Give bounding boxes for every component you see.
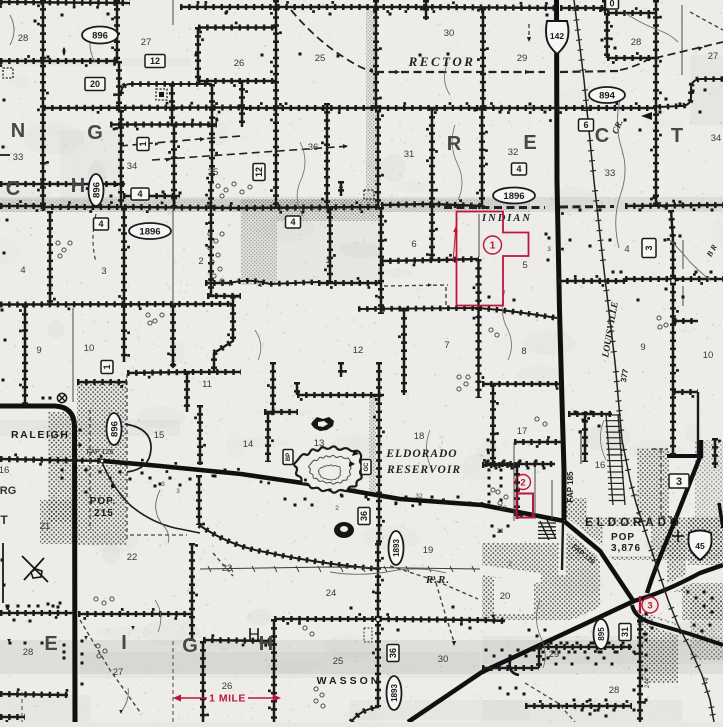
- svg-text:RECTOR: RECTOR: [408, 54, 476, 69]
- svg-text:19: 19: [423, 545, 434, 556]
- svg-text:4: 4: [290, 217, 295, 227]
- svg-text:28: 28: [23, 647, 34, 658]
- svg-text:22: 22: [127, 552, 138, 563]
- svg-text:27: 27: [708, 51, 719, 62]
- svg-text:2: 2: [520, 478, 525, 489]
- svg-text:3: 3: [547, 246, 551, 253]
- svg-text:45: 45: [695, 541, 705, 551]
- svg-text:4: 4: [20, 265, 25, 276]
- svg-text:RALEIGH: RALEIGH: [11, 429, 69, 441]
- svg-text:32: 32: [415, 493, 423, 500]
- svg-text:FAP 185: FAP 185: [566, 471, 575, 503]
- svg-text:52: 52: [499, 505, 507, 512]
- svg-text:6: 6: [583, 120, 588, 130]
- svg-text:12: 12: [150, 56, 160, 66]
- svg-text:E: E: [44, 633, 57, 655]
- svg-text:I: I: [121, 632, 127, 654]
- svg-text:1896: 1896: [503, 191, 524, 202]
- svg-text:35: 35: [208, 167, 219, 178]
- svg-text:33: 33: [605, 168, 616, 179]
- svg-text:244: 244: [645, 677, 651, 688]
- svg-text:WASSON: WASSON: [317, 675, 382, 687]
- svg-text:33: 33: [13, 152, 24, 163]
- svg-text:15: 15: [154, 430, 165, 441]
- svg-text:3: 3: [644, 245, 654, 250]
- svg-text:36: 36: [359, 511, 369, 521]
- svg-text:1: 1: [138, 141, 148, 146]
- svg-text:4: 4: [624, 244, 629, 255]
- svg-text:894: 894: [599, 90, 616, 101]
- svg-text:G: G: [87, 122, 103, 144]
- svg-text:21: 21: [40, 521, 51, 532]
- svg-text:20: 20: [500, 591, 511, 602]
- svg-text:27: 27: [113, 667, 124, 678]
- svg-text:6: 6: [411, 239, 416, 250]
- svg-text:25: 25: [333, 656, 344, 667]
- svg-text:23: 23: [222, 563, 233, 574]
- svg-text:10: 10: [703, 350, 714, 361]
- svg-text:30: 30: [438, 654, 449, 665]
- svg-text:31: 31: [620, 627, 630, 637]
- svg-text:32: 32: [508, 147, 519, 158]
- svg-text:27: 27: [141, 37, 152, 48]
- svg-text:26: 26: [234, 58, 245, 69]
- svg-text:896: 896: [91, 182, 102, 198]
- svg-text:1: 1: [102, 364, 112, 369]
- svg-text:9: 9: [36, 345, 41, 356]
- svg-text:895: 895: [597, 627, 606, 641]
- svg-text:23: 23: [497, 529, 504, 535]
- svg-text:215: 215: [94, 508, 114, 519]
- svg-text:24: 24: [326, 588, 337, 599]
- svg-text:31: 31: [404, 149, 415, 160]
- svg-text:0: 0: [609, 0, 614, 8]
- svg-text:2: 2: [198, 256, 203, 267]
- svg-text:E: E: [523, 132, 536, 154]
- svg-text:ELDORADO: ELDORADO: [385, 448, 457, 460]
- svg-text:10: 10: [84, 343, 95, 354]
- svg-text:12: 12: [254, 167, 264, 177]
- svg-text:34: 34: [127, 161, 138, 172]
- svg-text:3: 3: [676, 476, 682, 488]
- svg-text:1 MILE: 1 MILE: [209, 693, 246, 705]
- svg-text:4: 4: [98, 219, 103, 229]
- svg-text:POP.: POP.: [90, 496, 117, 507]
- svg-text:H: H: [71, 175, 85, 197]
- svg-text:FAP 126: FAP 126: [87, 449, 114, 456]
- svg-text:20: 20: [90, 79, 100, 89]
- svg-text:26: 26: [222, 681, 233, 692]
- svg-text:25: 25: [315, 53, 326, 64]
- svg-text:2: 2: [508, 561, 512, 568]
- svg-text:RG: RG: [0, 485, 16, 497]
- svg-text:INDIAN: INDIAN: [481, 213, 532, 224]
- svg-text:8: 8: [521, 346, 526, 357]
- svg-text:1: 1: [490, 241, 496, 252]
- svg-text:896: 896: [92, 30, 108, 41]
- svg-text:29: 29: [549, 649, 560, 660]
- svg-text:G: G: [182, 635, 198, 657]
- svg-text:16: 16: [0, 465, 9, 476]
- svg-text:1893: 1893: [390, 684, 399, 702]
- svg-text:36: 36: [388, 648, 398, 658]
- svg-text:POP: POP: [611, 532, 635, 543]
- svg-text:C: C: [595, 125, 609, 147]
- svg-text:C: C: [6, 178, 20, 200]
- svg-text:1893: 1893: [392, 539, 401, 557]
- svg-text:29: 29: [517, 53, 528, 64]
- svg-text:R.R.: R.R.: [425, 574, 450, 586]
- svg-text:28: 28: [609, 685, 620, 696]
- svg-text:GC: GC: [364, 462, 370, 472]
- svg-text:12: 12: [353, 345, 364, 356]
- svg-text:2: 2: [335, 505, 339, 512]
- svg-text:28: 28: [631, 37, 642, 48]
- svg-text:3: 3: [101, 266, 106, 277]
- svg-text:36: 36: [308, 142, 319, 153]
- svg-text:30: 30: [444, 28, 455, 39]
- svg-text:4: 4: [137, 189, 142, 199]
- svg-text:13: 13: [314, 438, 325, 449]
- svg-text:ELDORADO: ELDORADO: [585, 517, 683, 529]
- svg-text:896: 896: [109, 421, 120, 437]
- svg-text:14: 14: [243, 439, 254, 450]
- svg-text:N: N: [11, 120, 25, 142]
- svg-text:R: R: [447, 133, 462, 155]
- svg-text:BP: BP: [286, 453, 292, 461]
- svg-text:11: 11: [202, 379, 212, 390]
- svg-text:9: 9: [640, 342, 645, 353]
- svg-text:34: 34: [711, 133, 722, 144]
- svg-text:3,876: 3,876: [611, 543, 641, 554]
- svg-text:28: 28: [18, 33, 29, 44]
- svg-text:4: 4: [516, 164, 521, 174]
- svg-text:5: 5: [522, 260, 527, 271]
- svg-text:RESERVOIR: RESERVOIR: [386, 464, 461, 476]
- svg-text:18: 18: [414, 431, 425, 442]
- svg-text:7: 7: [444, 340, 449, 351]
- svg-text:3: 3: [647, 601, 652, 612]
- svg-text:1896: 1896: [139, 226, 160, 237]
- svg-text:17: 17: [517, 426, 528, 437]
- svg-text:1: 1: [325, 255, 330, 266]
- svg-text:T: T: [0, 513, 8, 527]
- svg-text:T: T: [671, 125, 683, 147]
- svg-text:H: H: [259, 633, 273, 655]
- svg-text:16: 16: [595, 460, 606, 471]
- svg-text:142: 142: [550, 31, 564, 41]
